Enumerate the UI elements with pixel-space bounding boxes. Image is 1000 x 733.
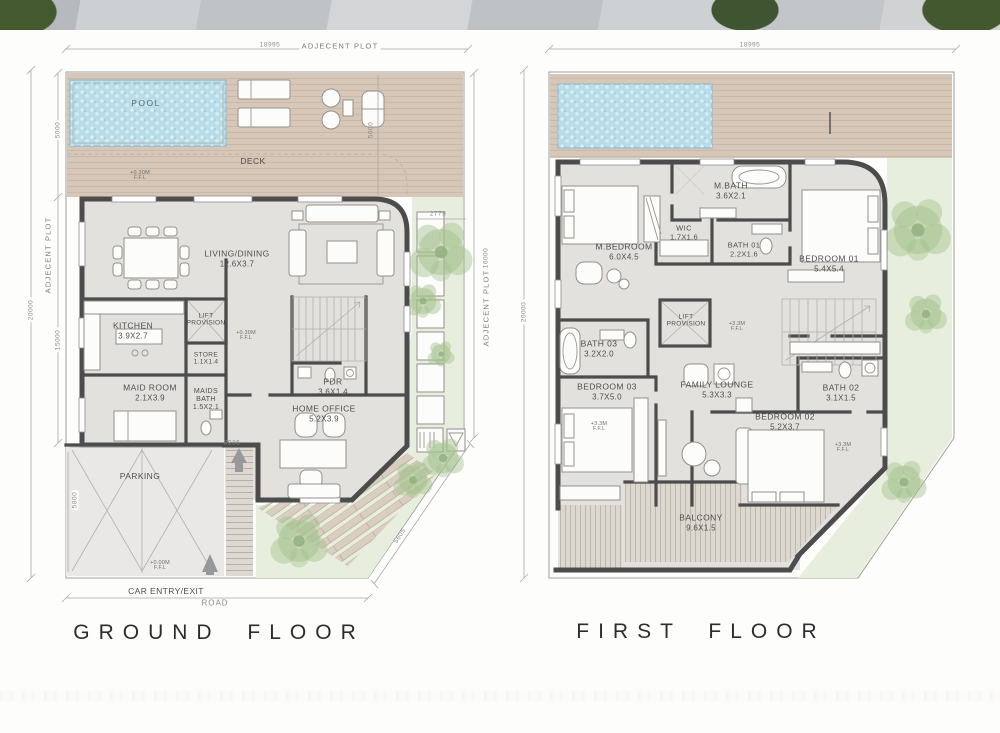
- label-car-entry-exit: CAR ENTRY/EXIT: [128, 587, 204, 597]
- label-adjacent-plot-right: ADJECENT PLOT: [482, 268, 491, 349]
- room-label-family-lounge: FAMILY LOUNGE5.3X3.3: [681, 381, 754, 400]
- ground-floor-title: GROUND FLOOR: [73, 621, 365, 645]
- room-label-home-office: HOME OFFICE5.2X3.9: [292, 405, 355, 424]
- room-label-bedroom03: BEDROOM 033.7X5.0: [577, 383, 637, 402]
- room-label-m-bedroom: M.BEDROOM6.0X4.5: [596, 243, 653, 262]
- room-label-parking: PARKING: [120, 472, 160, 482]
- room-label-m-bath: M.BATH3.6X2.1: [714, 182, 748, 201]
- floor-plan-sheet: POOL DECK LIVING/DINING12.6X3.7 KITCHEN3…: [0, 0, 1000, 733]
- dim-first-left-length: 20000: [521, 300, 528, 325]
- label-road: ROAD: [199, 599, 230, 608]
- dim-first-top-length: 18995: [738, 42, 763, 49]
- ffl-marker-hall: +3.3MF.F.L: [729, 321, 745, 333]
- room-label-lift-provision-first: LIFTPROVISION: [667, 314, 706, 329]
- room-label-pdr: PDR3.6X1.4: [318, 378, 348, 397]
- room-label-lift-provision: LIFTPROVISION: [187, 313, 226, 328]
- ffl-marker-bedroom02: +3.3MF.F.L: [835, 442, 851, 454]
- room-label-bath03: BATH 033.2X2.0: [581, 340, 618, 359]
- dim-house-depth: 15000: [55, 328, 62, 353]
- ffl-marker-entry: +0.00MF.F.L: [150, 560, 170, 572]
- dim-pool-depth: 5000: [55, 120, 62, 140]
- dim-ground-top-length: 18995: [258, 42, 283, 49]
- first-floor-plan: [520, 45, 960, 582]
- room-label-bath01: BATH 012.2X1.6: [728, 241, 761, 258]
- dim-right-length: 16000: [483, 246, 490, 271]
- dim-deck-right: 5000: [368, 120, 375, 140]
- dim-parking-width: 8936: [222, 440, 242, 447]
- ffl-marker-deck: +0.30MF.F.L: [130, 170, 150, 182]
- room-label-kitchen: KITCHEN3.9X2.7: [113, 322, 153, 341]
- label-adjacent-plot-top: ADJECENT PLOT: [300, 42, 381, 51]
- label-adjacent-plot-left: ADJECENT PLOT: [44, 215, 53, 296]
- ffl-marker-living: +0.30MF.F.L: [236, 330, 256, 342]
- dim-side-offset: 2779: [428, 211, 448, 218]
- room-label-living-dining: LIVING/DINING12.6X3.7: [204, 250, 269, 269]
- room-label-wic: WIC1.7X1.6: [670, 224, 698, 241]
- room-label-bedroom01: BEDROOM 015.4X5.4: [799, 255, 859, 274]
- dim-ground-left-length: 20000: [28, 298, 35, 323]
- room-label-maids-bath: MAIDS BATH1.5X2.1: [188, 388, 224, 412]
- dim-parking-depth: 5800: [72, 490, 79, 510]
- room-label-balcony: BALCONY9.6X1.5: [679, 514, 722, 533]
- ffl-marker-bedroom03: +3.3MF.F.L: [591, 421, 607, 433]
- first-floor-title: FIRST FLOOR: [576, 620, 825, 644]
- room-label-bath02: BATH 023.1X1.5: [823, 384, 860, 403]
- ground-floor-plan: [27, 45, 478, 602]
- room-label-deck: DECK: [240, 157, 265, 167]
- room-label-pool: POOL: [131, 99, 161, 109]
- room-label-maid-room: MAID ROOM2.1X3.9: [123, 384, 177, 403]
- room-label-bedroom02: BEDROOM 025.2X3.7: [755, 413, 815, 432]
- room-label-store: STORE1.1X1.4: [194, 352, 219, 367]
